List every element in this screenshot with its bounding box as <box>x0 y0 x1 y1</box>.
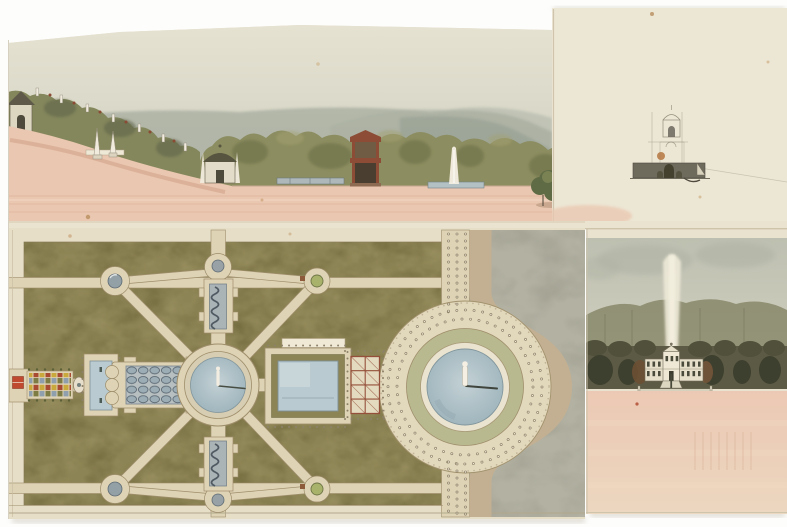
entrance-marker <box>9 369 29 402</box>
east-pool-garden <box>265 339 351 428</box>
sheet-pavilion-sketch <box>544 8 787 228</box>
low-water-wall <box>277 178 344 184</box>
red-speck <box>635 402 638 405</box>
watercolor-garden-drawing <box>0 0 787 527</box>
pavilion-base-terrace <box>630 163 710 182</box>
sheet-palace-elevation <box>580 228 787 514</box>
great-circular-basin <box>379 301 551 473</box>
fountain-node-sw <box>101 475 130 504</box>
sheet-main-elevation <box>7 24 574 228</box>
sheet-garden-plan <box>8 228 585 519</box>
slope-steps <box>86 150 124 155</box>
fountain-node-nw <box>101 267 130 296</box>
red-belvedere-tower <box>350 130 381 187</box>
fountain-plume-core <box>669 255 675 351</box>
sheet-seam <box>8 221 787 229</box>
trellis-parterre <box>345 351 386 419</box>
flower-parterre-band <box>27 370 73 401</box>
forecourt-statue <box>670 374 672 388</box>
central-fountain-basin <box>177 344 259 426</box>
terrace-line <box>638 389 712 391</box>
